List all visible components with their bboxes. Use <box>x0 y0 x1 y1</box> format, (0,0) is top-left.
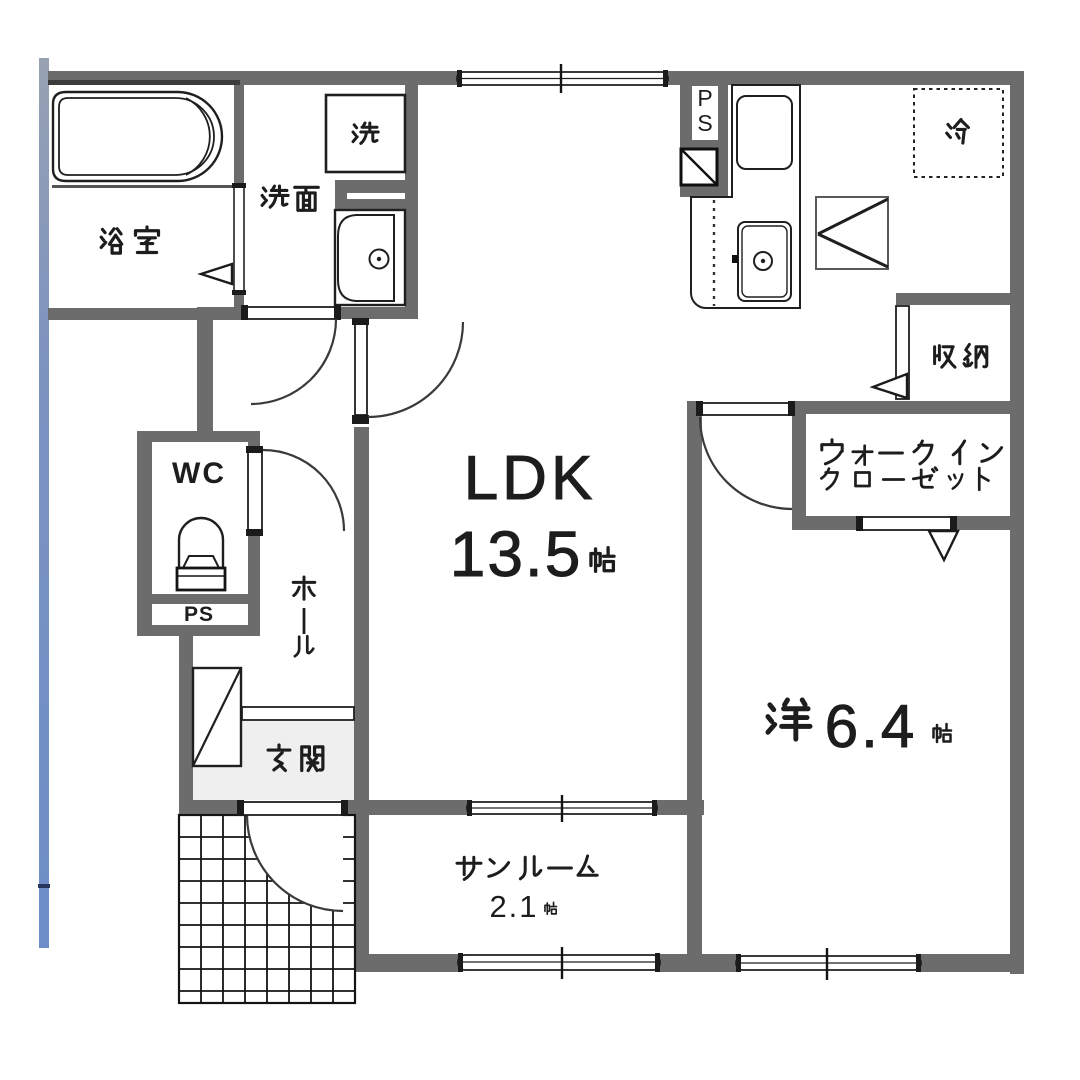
svg-text:S: S <box>697 110 712 136</box>
svg-text:P: P <box>697 85 712 111</box>
svg-text:PS: PS <box>184 603 214 626</box>
svg-text:6.4: 6.4 <box>825 693 917 760</box>
svg-text:LDK: LDK <box>464 444 597 513</box>
svg-text:13.5: 13.5 <box>450 518 583 590</box>
svg-text:WC: WC <box>172 457 226 490</box>
svg-text:2.1: 2.1 <box>489 889 538 924</box>
